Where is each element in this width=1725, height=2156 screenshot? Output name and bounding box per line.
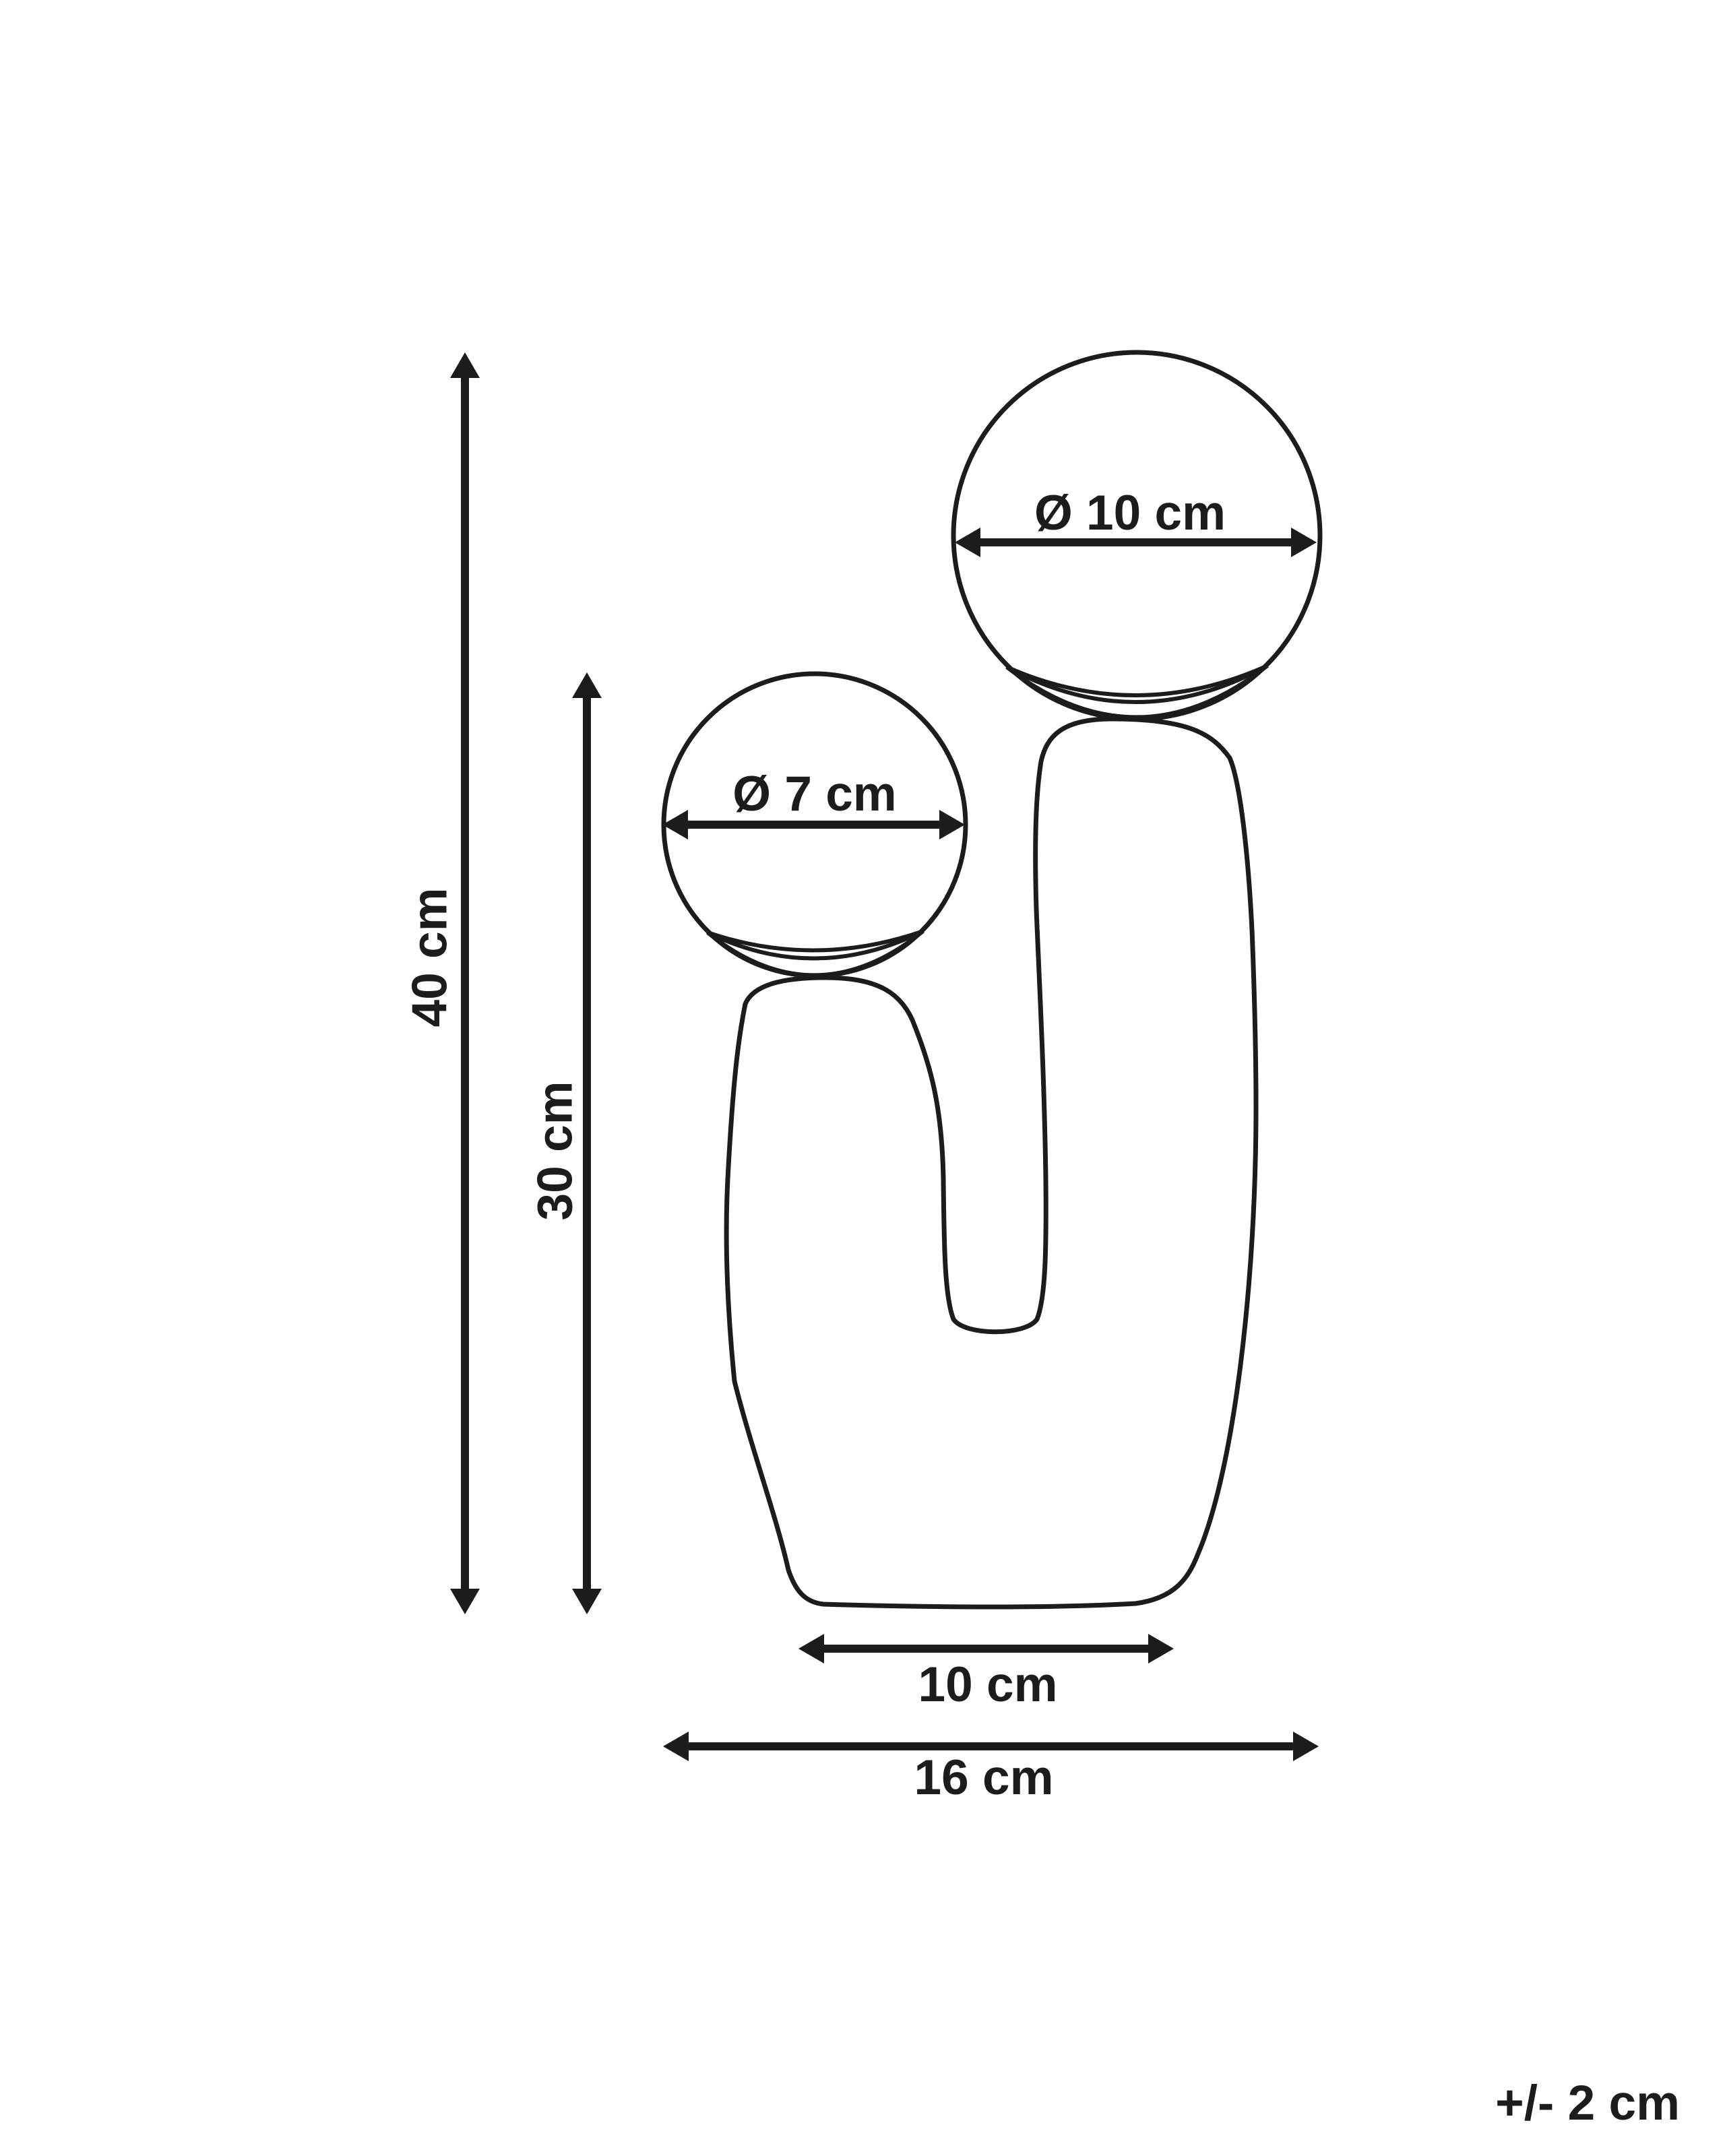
svg-text:Ø 7 cm: Ø 7 cm	[732, 767, 896, 821]
svg-text:30 cm: 30 cm	[528, 1081, 582, 1221]
svg-text:+/- 2 cm: +/- 2 cm	[1495, 2076, 1680, 2130]
svg-text:Ø 10 cm: Ø 10 cm	[1034, 486, 1226, 540]
svg-text:16 cm: 16 cm	[914, 1750, 1054, 1805]
svg-text:10 cm: 10 cm	[918, 1657, 1058, 1712]
svg-text:40 cm: 40 cm	[402, 888, 457, 1027]
